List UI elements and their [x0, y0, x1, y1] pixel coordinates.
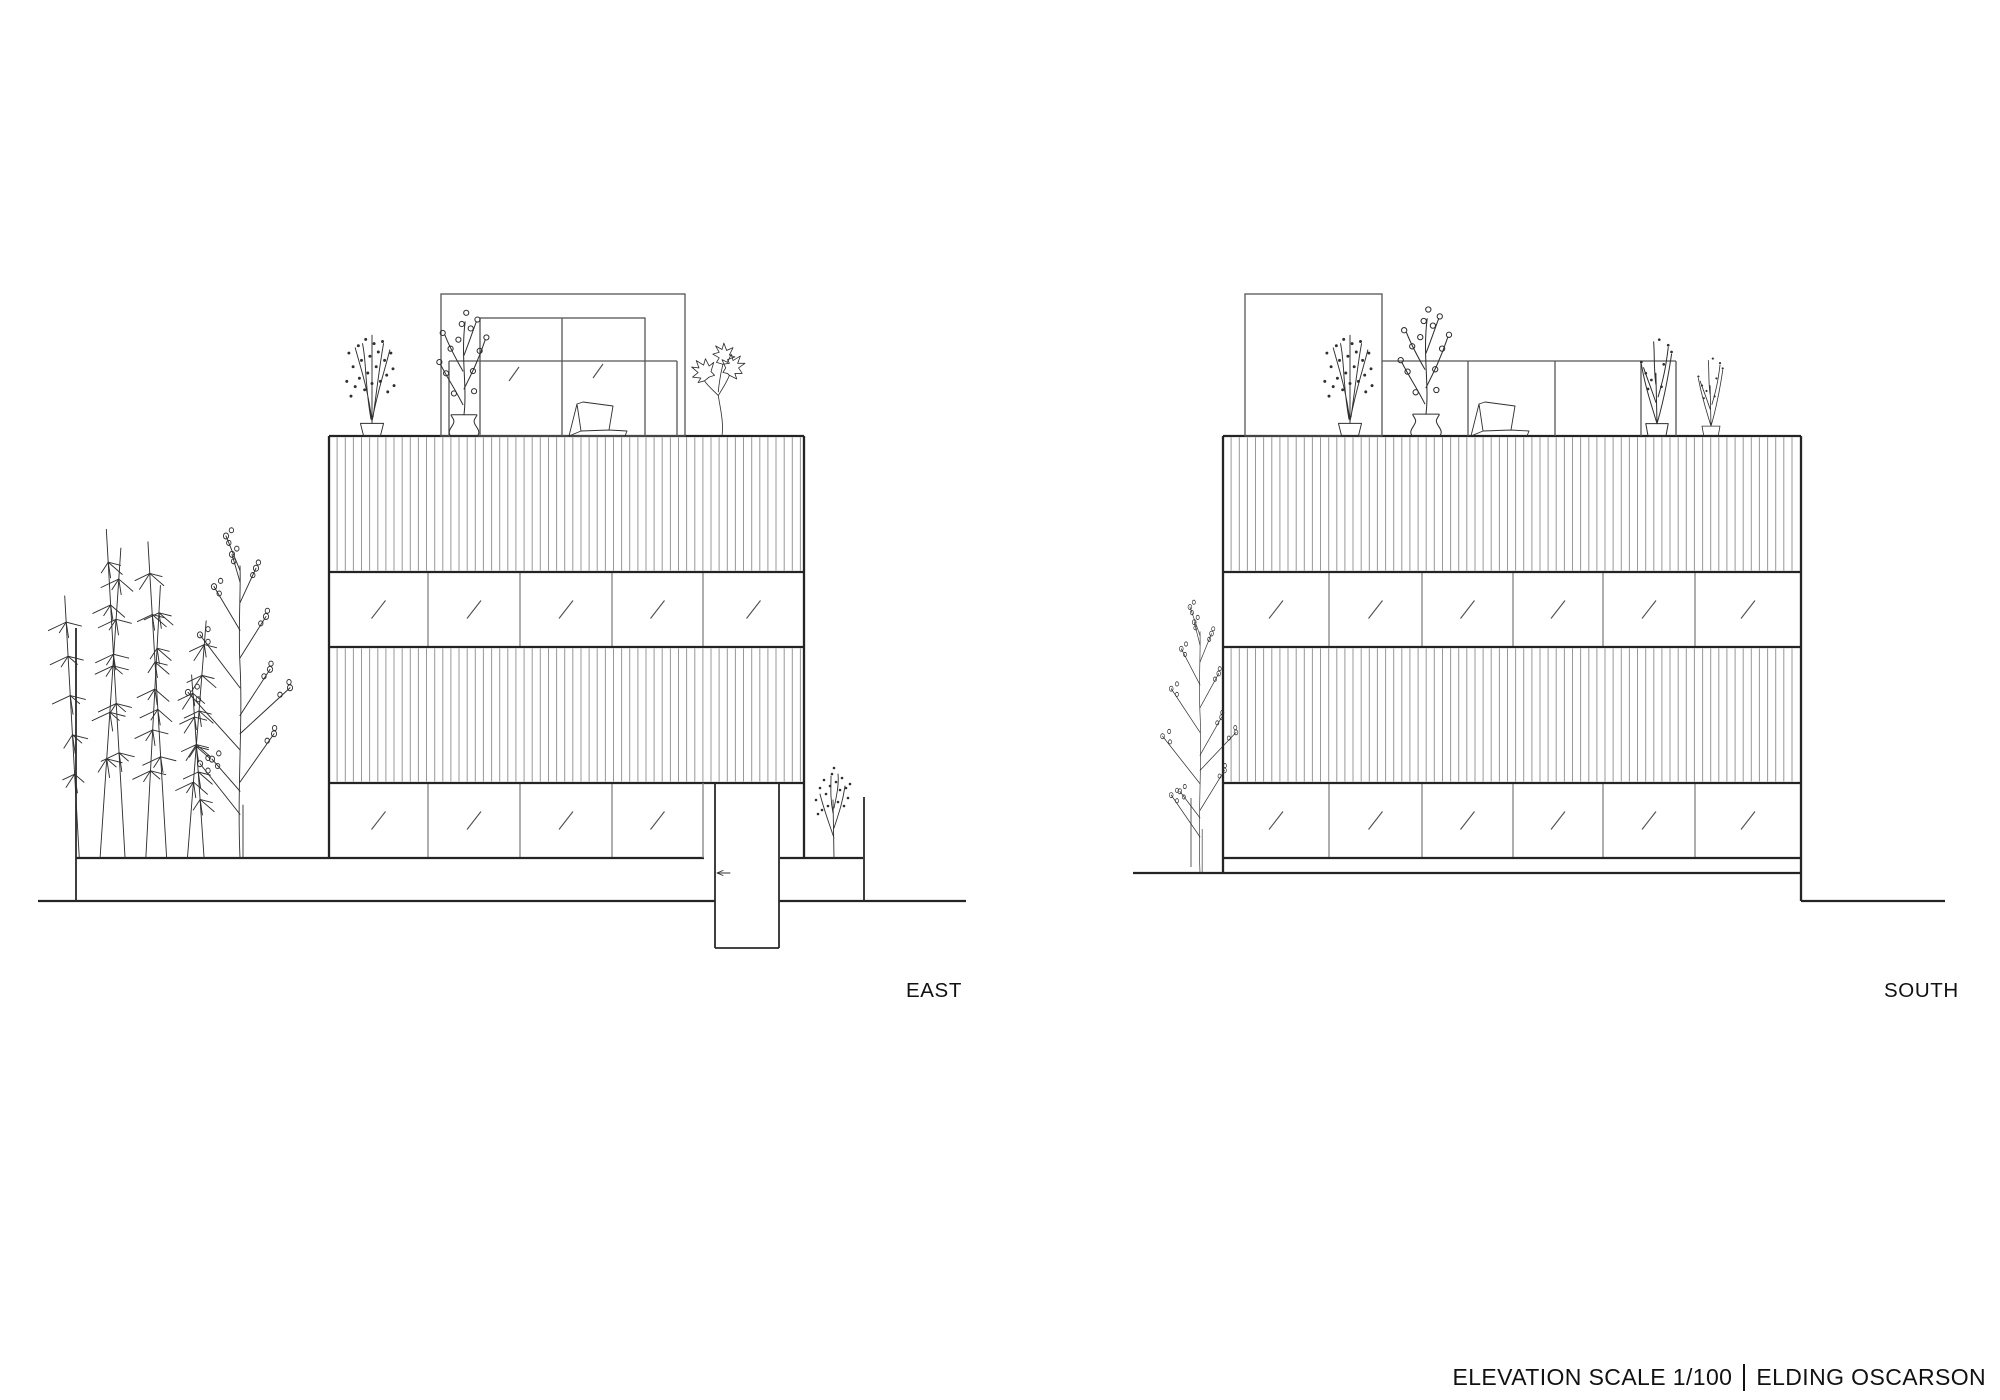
planter-tree [815, 767, 852, 858]
east-elevation-label: EAST [906, 979, 962, 1002]
east-slat-cladding [337, 438, 800, 782]
east-glazing-ticks [372, 601, 761, 830]
title-firm-text: ELDING OSCARSON [1756, 1364, 1986, 1391]
wispy-plant [1697, 358, 1723, 436]
elevation-drawing: EASTSOUTH [0, 0, 2000, 1400]
south-roof-structures [1245, 294, 1676, 436]
potted-plant [1323, 335, 1373, 436]
title-block: ELEVATION SCALE 1/100 ELDING OSCARSON [1453, 1364, 1987, 1391]
lounge-chair [569, 402, 627, 436]
wispy-plant [1640, 338, 1673, 436]
street-tree [1161, 600, 1238, 873]
title-scale-text: ELEVATION SCALE 1/100 [1453, 1364, 1733, 1391]
east-plants-and-furniture [48, 310, 851, 858]
leafy-plant [692, 343, 745, 436]
south-facade-structure [1133, 436, 1945, 901]
entry-arrow-icon [717, 871, 730, 876]
vase-plant [1398, 307, 1452, 436]
lounge-chair [1471, 402, 1529, 436]
potted-plant [345, 335, 395, 436]
south-glazing-ticks [1269, 601, 1755, 830]
title-separator-bar [1743, 1364, 1745, 1391]
south-elevation: SOUTH [1133, 294, 1959, 1002]
east-roof-structures [441, 294, 685, 436]
east-facade-structure [38, 436, 966, 901]
bamboo-tree [48, 529, 216, 858]
east-elevation: EAST [38, 294, 966, 1002]
south-slat-cladding [1231, 438, 1792, 782]
drawing-sheet: EASTSOUTH ELEVATION SCALE 1/100 ELDING O… [0, 0, 2000, 1400]
south-elevation-label: SOUTH [1884, 979, 1959, 1002]
vase-plant [437, 310, 489, 436]
south-window-mullions [1329, 572, 1695, 858]
